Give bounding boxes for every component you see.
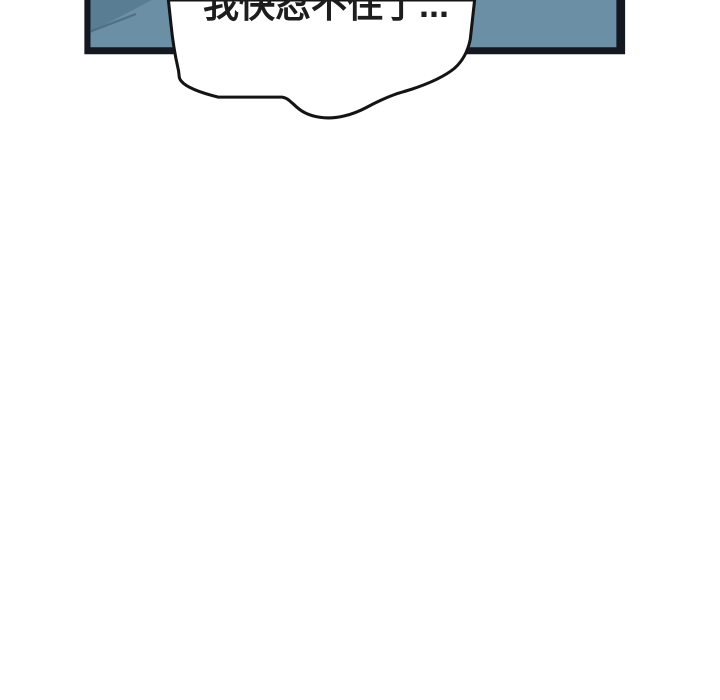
speech-bubble-text: 我快忍不住了... [126,0,526,23]
comic-page: 我快忍不住了... [0,0,720,700]
